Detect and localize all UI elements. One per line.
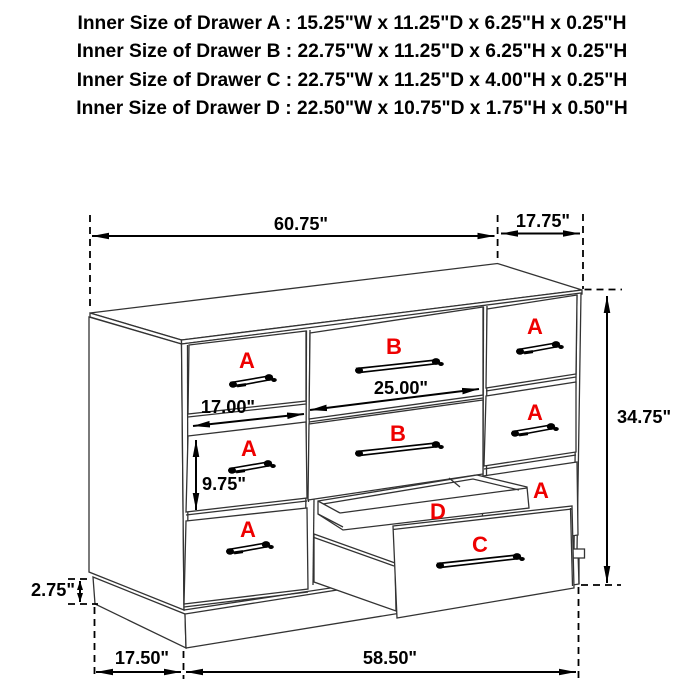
svg-text:Inner Size of Drawer D : 22.5: Inner Size of Drawer D : 22.50"W x 10.75… — [76, 98, 628, 119]
svg-text:A: A — [239, 348, 255, 373]
svg-text:Inner Size of Drawer A : 15.25: Inner Size of Drawer A : 15.25"W x 11.25… — [77, 13, 626, 34]
svg-text:C: C — [472, 532, 488, 557]
svg-text:A: A — [241, 436, 257, 461]
svg-text:17.75": 17.75" — [516, 211, 570, 231]
svg-text:A: A — [240, 517, 256, 542]
svg-text:A: A — [533, 478, 549, 503]
svg-text:58.50": 58.50" — [363, 648, 417, 668]
svg-text:9.75": 9.75" — [202, 474, 246, 494]
svg-text:A: A — [527, 314, 543, 339]
svg-text:Inner Size of Drawer C : 22.75: Inner Size of Drawer C : 22.75"W x 11.25… — [77, 70, 627, 91]
svg-text:A: A — [527, 400, 543, 425]
svg-text:34.75": 34.75" — [617, 407, 671, 427]
svg-text:B: B — [390, 421, 406, 446]
svg-text:B: B — [386, 334, 402, 359]
svg-text:25.00": 25.00" — [374, 378, 428, 398]
svg-text:2.75": 2.75" — [31, 580, 75, 600]
svg-text:60.75": 60.75" — [274, 214, 328, 234]
svg-text:17.00": 17.00" — [201, 397, 255, 417]
svg-text:D: D — [430, 499, 446, 524]
svg-text:17.50": 17.50" — [115, 648, 169, 668]
svg-text:Inner Size of Drawer B : 22.75: Inner Size of Drawer B : 22.75"W x 11.25… — [77, 41, 627, 62]
